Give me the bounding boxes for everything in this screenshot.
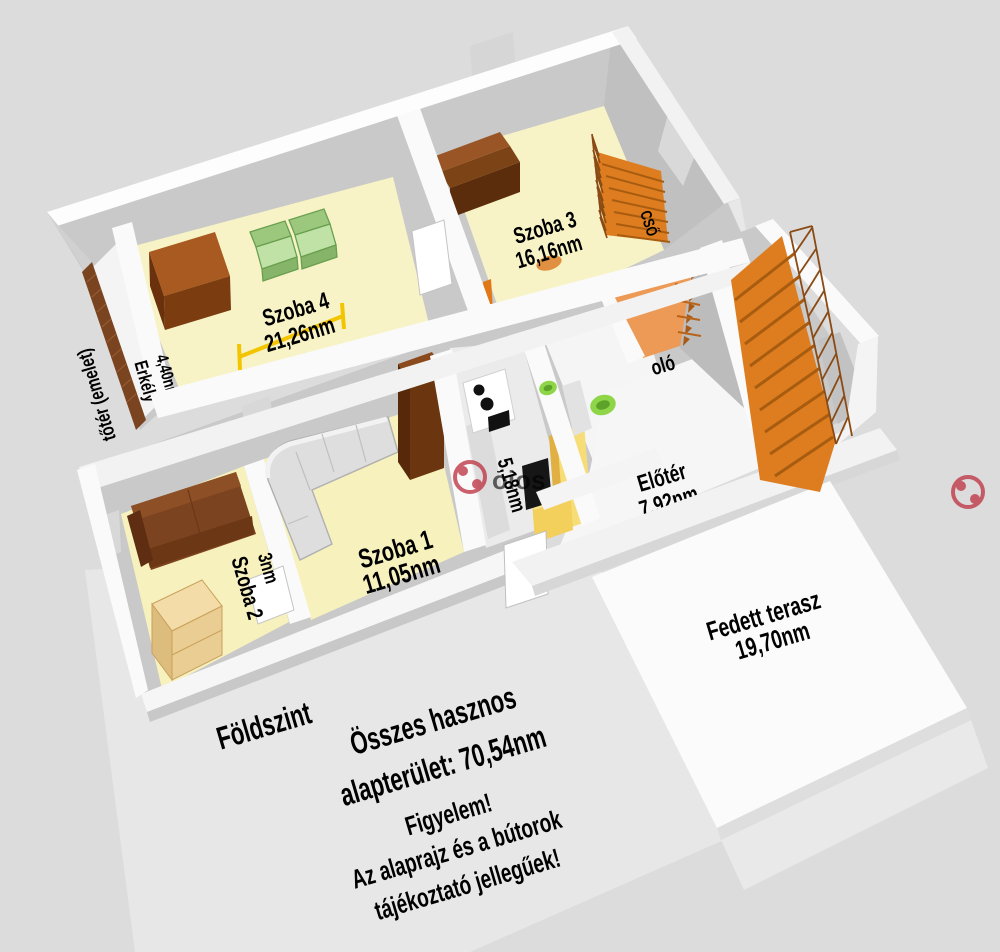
svg-text:oios: oios — [492, 465, 545, 495]
